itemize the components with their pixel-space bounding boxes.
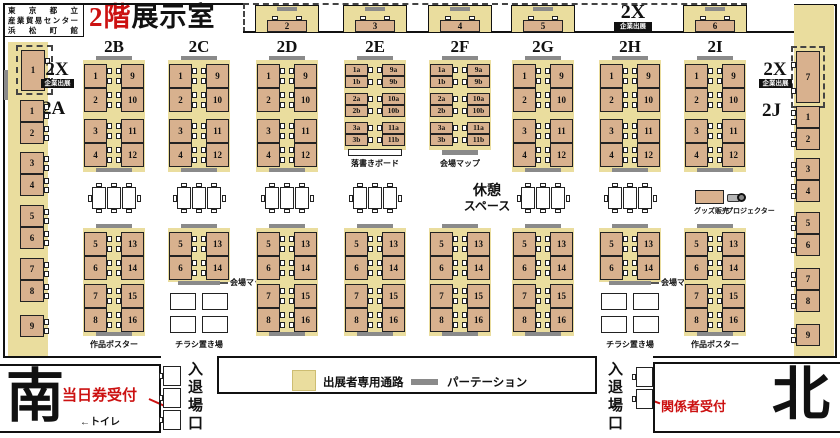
rest-table xyxy=(177,187,191,209)
chair-tab xyxy=(545,260,550,266)
chair-tab xyxy=(717,92,722,98)
booth-2H-9: 9 xyxy=(637,64,660,88)
chair-tab xyxy=(632,102,637,108)
chair-tab xyxy=(280,312,285,318)
chair-tab xyxy=(289,288,294,294)
chair-tab xyxy=(377,236,382,242)
chair-tab xyxy=(717,236,722,242)
booth-2G-12: 12 xyxy=(550,143,573,167)
rest-table xyxy=(383,187,397,209)
partition xyxy=(697,168,733,172)
chair-tab xyxy=(632,236,637,242)
chair-tab xyxy=(377,67,382,73)
chair-tab xyxy=(368,236,373,242)
chair-tab xyxy=(159,395,163,401)
chair-tab xyxy=(545,298,550,304)
corporate-booth-2: 2 xyxy=(267,20,307,32)
projector-lens xyxy=(737,193,746,202)
chair-tab xyxy=(107,157,112,163)
booth-2D-13: 13 xyxy=(294,232,317,256)
chair-tab xyxy=(623,270,628,276)
rest-table xyxy=(536,187,550,209)
chair-tab xyxy=(116,298,121,304)
chair-tab xyxy=(44,271,49,277)
booth-2D-3: 3 xyxy=(257,119,280,143)
chair-tab xyxy=(111,183,117,187)
chair-tab xyxy=(107,312,112,318)
booth-2J-9: 9 xyxy=(796,324,820,346)
chair-tab xyxy=(708,133,713,139)
chair-tab xyxy=(201,270,206,276)
chair-tab xyxy=(368,260,373,266)
corporate-label-left: 2X xyxy=(40,60,74,79)
chair-tab xyxy=(289,92,294,98)
partition xyxy=(612,168,648,172)
booth-2J-3: 3 xyxy=(796,158,820,180)
chair-tab xyxy=(642,183,648,187)
booth-2A-2: 2 xyxy=(20,122,44,144)
chair-tab xyxy=(377,260,382,266)
chair-tab xyxy=(536,260,541,266)
chair-tab xyxy=(368,312,373,318)
chair-tab xyxy=(540,183,546,187)
chair-tab xyxy=(44,284,49,290)
reception-table-south xyxy=(163,388,181,408)
chair-tab xyxy=(623,102,628,108)
booth-2G-15: 15 xyxy=(550,284,573,308)
chair-tab xyxy=(284,183,290,187)
chair-tab xyxy=(536,270,541,276)
booth-2F-11a: 11a xyxy=(467,122,490,134)
booth-2E-10b: 10b xyxy=(382,105,405,117)
chair-tab xyxy=(717,68,722,74)
booth-2G-6: 6 xyxy=(513,256,536,280)
flyer-table xyxy=(633,293,659,310)
chair-tab xyxy=(604,195,608,202)
flyer-area-label-2C: チラシ置き場 xyxy=(164,339,234,350)
booth-2H-12: 12 xyxy=(637,143,660,167)
booth-2G-14: 14 xyxy=(550,256,573,280)
chair-tab xyxy=(717,123,722,129)
chair-tab xyxy=(708,312,713,318)
column-label-2E: 2E xyxy=(350,37,400,57)
flyer-table xyxy=(170,293,196,310)
chair-tab xyxy=(44,240,49,246)
booth-2C-10: 10 xyxy=(206,88,229,112)
booth-2F-1b: 1b xyxy=(430,76,453,88)
booth-2D-6: 6 xyxy=(257,256,280,280)
booth-2C-6: 6 xyxy=(169,256,192,280)
chair-tab xyxy=(462,288,467,294)
corporate-alcove-bar-5 xyxy=(533,7,553,11)
chair-tab xyxy=(368,67,373,73)
wall-bottom-b xyxy=(217,356,597,358)
chair-tab xyxy=(280,92,285,98)
booth-2D-7: 7 xyxy=(257,284,280,308)
chair-tab xyxy=(116,236,121,242)
chair-tab xyxy=(791,216,796,222)
chair-tab xyxy=(453,288,458,294)
booth-2F-3b: 3b xyxy=(430,134,453,146)
booth-2G-7: 7 xyxy=(513,284,536,308)
chair-tab xyxy=(280,102,285,108)
flyer-area-label-2H: チラシ置き場 xyxy=(595,339,665,350)
chair-tab xyxy=(201,102,206,108)
partition xyxy=(96,56,132,60)
chair-tab xyxy=(107,236,112,242)
booth-2G-10: 10 xyxy=(550,88,573,112)
chair-tab xyxy=(107,123,112,129)
flyer-table xyxy=(170,316,196,333)
chair-tab xyxy=(627,183,633,187)
chair-tab xyxy=(462,246,467,252)
chair-tab xyxy=(289,260,294,266)
chair-tab xyxy=(107,246,112,252)
corporate-badge-right: 企業出展 xyxy=(759,79,792,88)
chair-tab xyxy=(44,156,49,162)
chair-tab xyxy=(555,183,561,187)
chair-tab xyxy=(44,218,49,224)
booth-2C-2: 2 xyxy=(169,88,192,112)
chair-tab xyxy=(632,374,636,380)
chair-tab xyxy=(708,288,713,294)
chair-tab xyxy=(545,157,550,163)
reception-table-north xyxy=(636,389,653,409)
chair-tab xyxy=(44,178,49,184)
chair-tab xyxy=(717,298,722,304)
chair-tab xyxy=(116,246,121,252)
partition xyxy=(96,332,132,336)
chair-tab xyxy=(708,92,713,98)
booth-2I-5: 5 xyxy=(685,232,708,256)
wall-left xyxy=(3,3,5,358)
chair-tab xyxy=(525,209,531,213)
booth-2C-9: 9 xyxy=(206,64,229,88)
board-label-2F: 会場マップ xyxy=(425,158,495,169)
booth-2B-6: 6 xyxy=(84,256,107,280)
chair-tab xyxy=(791,141,796,147)
chair-tab xyxy=(453,312,458,318)
chair-tab xyxy=(192,78,197,84)
chair-tab xyxy=(44,126,49,132)
booth-2E-14: 14 xyxy=(382,256,405,280)
chair-tab xyxy=(708,236,713,242)
booth-2D-9: 9 xyxy=(294,64,317,88)
booth-2A-7: 7 xyxy=(20,258,44,280)
chair-tab xyxy=(517,195,521,202)
projector-label: プロジェクター xyxy=(726,206,775,216)
booth-2F-9a: 9a xyxy=(467,64,490,76)
chair-tab xyxy=(192,123,197,129)
chair-tab xyxy=(116,270,121,276)
chair-tab xyxy=(116,68,121,74)
flyer-table xyxy=(202,293,228,310)
chair-tab xyxy=(462,67,467,73)
chair-tab xyxy=(280,78,285,84)
chair-tab xyxy=(653,195,657,202)
booth-2J-8: 8 xyxy=(796,290,820,312)
chair-tab xyxy=(642,209,648,213)
legend-passage-label: 出展者専用通路 xyxy=(323,374,404,390)
chair-tab xyxy=(116,147,121,153)
partition xyxy=(269,56,305,60)
booth-2F-10a: 10a xyxy=(467,93,490,105)
booth-2E-9a: 9a xyxy=(382,64,405,76)
chair-tab xyxy=(44,231,49,237)
chair-tab xyxy=(623,260,628,266)
chair-tab xyxy=(289,246,294,252)
legend-partition-label: パーテーション xyxy=(447,374,527,390)
south-box-top xyxy=(0,364,161,366)
north-box-bottom xyxy=(653,431,840,433)
chair-tab xyxy=(717,133,722,139)
booth-2B-5: 5 xyxy=(84,232,107,256)
chair-tab xyxy=(453,137,458,143)
chair-tab xyxy=(632,260,637,266)
booth-2B-2: 2 xyxy=(84,88,107,112)
chair-tab xyxy=(201,147,206,153)
chair-tab xyxy=(708,322,713,328)
booth-2H-6: 6 xyxy=(600,256,623,280)
wall-top-b xyxy=(746,31,796,33)
booth-2B-16: 16 xyxy=(121,308,144,332)
column-label-2I: 2I xyxy=(690,37,740,57)
legend-partition-swatch xyxy=(411,379,438,385)
booth-2B-7: 7 xyxy=(84,284,107,308)
booth-2F-6: 6 xyxy=(430,256,453,280)
flyer-table xyxy=(202,316,228,333)
toilet-label: ←トイレ xyxy=(80,413,120,428)
chair-tab xyxy=(612,209,618,213)
corporate-booth-7: 7 xyxy=(796,51,820,103)
board-2F xyxy=(442,150,478,155)
chair-tab xyxy=(708,260,713,266)
chair-tab xyxy=(708,298,713,304)
chair-tab xyxy=(289,312,294,318)
chair-tab xyxy=(536,298,541,304)
chair-tab xyxy=(377,125,382,131)
chair-tab xyxy=(126,183,132,187)
booth-2E-13: 13 xyxy=(382,232,405,256)
chair-tab xyxy=(280,123,285,129)
flyer-table xyxy=(601,293,627,310)
chair-tab xyxy=(536,147,541,153)
north-box-top xyxy=(653,362,840,364)
reception-table-south xyxy=(163,366,181,386)
rest-table xyxy=(107,187,121,209)
rest-table xyxy=(295,187,309,209)
legend-passage-swatch xyxy=(292,370,316,391)
chair-tab xyxy=(44,319,49,325)
chair-tab xyxy=(791,337,796,343)
chair-tab xyxy=(545,236,550,242)
chair-tab xyxy=(453,270,458,276)
chair-tab xyxy=(717,147,722,153)
booth-2G-11: 11 xyxy=(550,119,573,143)
chair-tab xyxy=(372,183,378,187)
booth-2B-10: 10 xyxy=(121,88,144,112)
booth-2H-2: 2 xyxy=(600,88,623,112)
chair-tab xyxy=(453,79,458,85)
chair-tab xyxy=(623,78,628,84)
chair-tab xyxy=(201,123,206,129)
chair-tab xyxy=(173,195,177,202)
corporate-booth-5: 5 xyxy=(523,20,563,32)
zone-label-2J: 2J xyxy=(762,100,781,122)
booth-2A-8: 8 xyxy=(20,280,44,302)
chair-tab xyxy=(545,322,550,328)
partition xyxy=(697,56,733,60)
staff-reception-label: 関係者受付 xyxy=(661,396,726,415)
venue-name-line2: 産業貿易センター xyxy=(8,16,78,26)
chair-tab xyxy=(545,147,550,153)
chair-tab xyxy=(44,293,49,299)
chair-tab xyxy=(545,78,550,84)
booth-2B-13: 13 xyxy=(121,232,144,256)
booth-2I-1: 1 xyxy=(685,64,708,88)
chair-tab xyxy=(717,312,722,318)
booth-2I-4: 4 xyxy=(685,143,708,167)
chair-tab xyxy=(708,123,713,129)
chair-tab xyxy=(708,68,713,74)
chair-tab xyxy=(116,133,121,139)
booth-2D-10: 10 xyxy=(294,88,317,112)
chair-tab xyxy=(632,270,637,276)
booth-2D-2: 2 xyxy=(257,88,280,112)
chair-tab xyxy=(462,79,467,85)
chair-tab xyxy=(44,262,49,268)
chair-tab xyxy=(107,133,112,139)
page-title-floor: 2階 xyxy=(89,2,132,32)
chair-tab xyxy=(377,96,382,102)
chair-tab xyxy=(368,108,373,114)
chair-tab xyxy=(280,270,285,276)
chair-tab xyxy=(453,108,458,114)
chair-tab xyxy=(708,270,713,276)
reception-table-south xyxy=(163,410,181,430)
partition xyxy=(442,332,478,336)
page-title: 2階展示室 xyxy=(89,3,216,33)
chair-tab xyxy=(44,328,49,334)
chair-tab xyxy=(192,260,197,266)
booth-2I-10: 10 xyxy=(722,88,745,112)
chair-tab xyxy=(88,195,92,202)
chair-tab xyxy=(623,147,628,153)
booth-2F-1a: 1a xyxy=(430,64,453,76)
booth-2I-6: 6 xyxy=(685,256,708,280)
booth-2F-13: 13 xyxy=(467,232,490,256)
chair-tab xyxy=(377,137,382,143)
chair-tab xyxy=(536,133,541,139)
venue-map-board-2C xyxy=(178,281,220,285)
chair-tab xyxy=(280,68,285,74)
flyer-table xyxy=(601,316,627,333)
chair-tab xyxy=(545,270,550,276)
chair-tab xyxy=(289,322,294,328)
chair-tab xyxy=(280,133,285,139)
partition xyxy=(525,332,561,336)
chair-tab xyxy=(791,132,796,138)
booth-2E-2a: 2a xyxy=(345,93,368,105)
chair-tab xyxy=(536,157,541,163)
booth-2F-16: 16 xyxy=(467,308,490,332)
booth-2F-15: 15 xyxy=(467,284,490,308)
booth-2J-6: 6 xyxy=(796,234,820,256)
chair-tab xyxy=(211,209,217,213)
chair-tab xyxy=(632,246,637,252)
chair-tab xyxy=(632,123,637,129)
booth-2A-4: 4 xyxy=(20,174,44,196)
rest-table xyxy=(265,187,279,209)
booth-2D-14: 14 xyxy=(294,256,317,280)
board-label-2E: 落書きボード xyxy=(340,158,410,169)
chair-tab xyxy=(107,92,112,98)
chair-tab xyxy=(791,162,796,168)
chair-tab xyxy=(107,78,112,84)
chair-tab xyxy=(791,171,796,177)
partition xyxy=(357,332,393,336)
chair-tab xyxy=(791,238,796,244)
corporate-label-right: 2X xyxy=(758,60,792,79)
booth-2D-15: 15 xyxy=(294,284,317,308)
chair-tab xyxy=(201,78,206,84)
chair-tab xyxy=(545,288,550,294)
wall-top-a xyxy=(3,3,245,5)
chair-tab xyxy=(453,236,458,242)
chair-tab xyxy=(632,133,637,139)
booth-2I-14: 14 xyxy=(722,256,745,280)
chair-tab xyxy=(536,102,541,108)
chair-tab xyxy=(44,104,49,110)
partition xyxy=(181,168,217,172)
chair-tab xyxy=(387,183,393,187)
rest-table xyxy=(192,187,206,209)
chair-tab xyxy=(116,260,121,266)
booth-2D-5: 5 xyxy=(257,232,280,256)
chair-tab xyxy=(107,298,112,304)
chair-tab xyxy=(192,246,197,252)
chair-tab xyxy=(717,288,722,294)
chair-tab xyxy=(201,92,206,98)
booth-2C-4: 4 xyxy=(169,143,192,167)
chair-tab xyxy=(310,195,314,202)
booth-2J-2: 2 xyxy=(796,128,820,150)
chair-tab xyxy=(462,312,467,318)
chair-tab xyxy=(201,260,206,266)
booth-2I-11: 11 xyxy=(722,119,745,143)
chair-tab xyxy=(116,78,121,84)
booth-2G-5: 5 xyxy=(513,232,536,256)
chair-tab xyxy=(536,236,541,242)
booth-2D-8: 8 xyxy=(257,308,280,332)
chair-tab xyxy=(708,157,713,163)
booth-2C-5: 5 xyxy=(169,232,192,256)
chair-tab xyxy=(181,209,187,213)
booth-2I-12: 12 xyxy=(722,143,745,167)
chair-tab xyxy=(280,260,285,266)
chair-tab xyxy=(462,260,467,266)
chair-tab xyxy=(201,133,206,139)
chair-tab xyxy=(791,193,796,199)
booth-2A-5: 5 xyxy=(20,205,44,227)
chair-tab xyxy=(107,147,112,153)
chair-tab xyxy=(377,298,382,304)
booth-2E-9b: 9b xyxy=(382,76,405,88)
booth-2E-10a: 10a xyxy=(382,93,405,105)
rest-table xyxy=(280,187,294,209)
chair-tab xyxy=(632,92,637,98)
chair-tab xyxy=(116,92,121,98)
